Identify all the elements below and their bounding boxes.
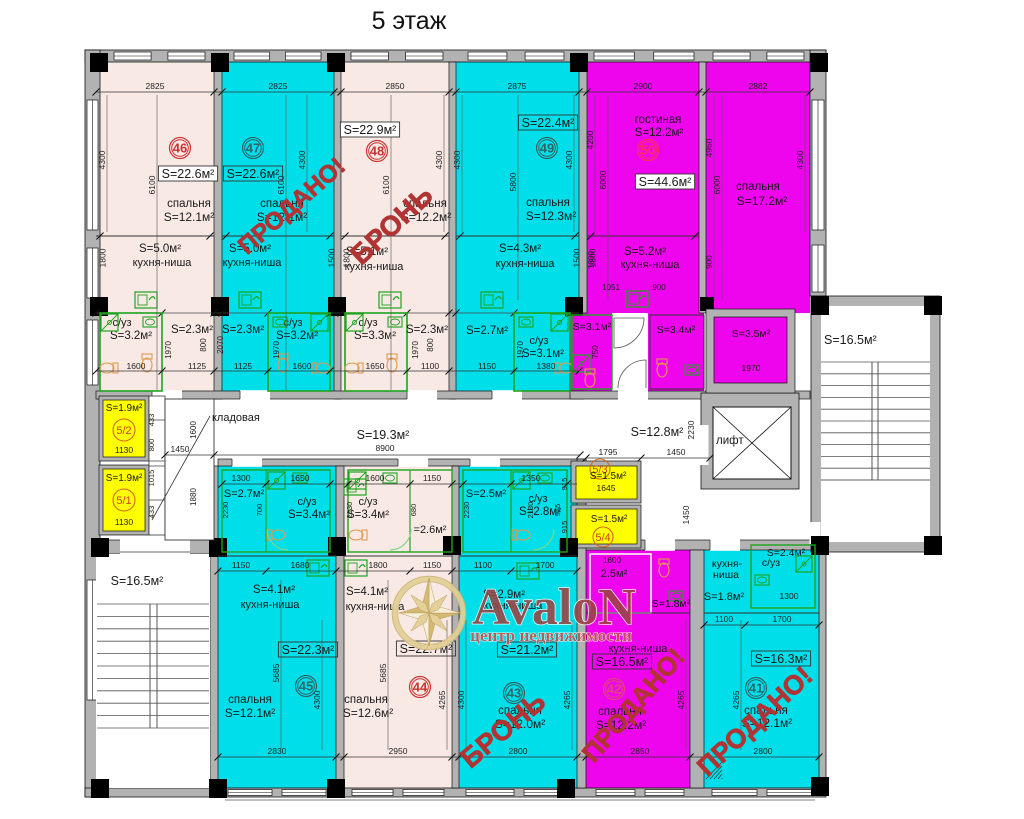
- svg-text:5/2: 5/2: [116, 425, 131, 437]
- svg-text:S=5.2м²: S=5.2м²: [624, 246, 666, 258]
- svg-text:S=22.3м²: S=22.3м²: [282, 643, 335, 657]
- svg-text:1500: 1500: [572, 248, 582, 267]
- svg-text:1700: 1700: [773, 614, 792, 624]
- svg-text:S=1.5м²: S=1.5м²: [590, 471, 627, 482]
- svg-text:4300: 4300: [434, 150, 444, 169]
- svg-text:S=2.3м²: S=2.3м²: [222, 324, 264, 336]
- svg-text:915: 915: [560, 478, 569, 491]
- svg-text:4950: 4950: [704, 138, 714, 157]
- svg-text:1970: 1970: [742, 363, 761, 373]
- svg-text:кухня-ниша: кухня-ниша: [496, 258, 556, 270]
- svg-text:900: 900: [652, 283, 666, 292]
- svg-text:433: 433: [147, 414, 156, 427]
- svg-text:S=1.9м²: S=1.9м²: [106, 473, 143, 484]
- svg-text:6100: 6100: [147, 175, 157, 194]
- svg-text:900: 900: [705, 255, 714, 269]
- svg-text:1300: 1300: [780, 591, 799, 601]
- svg-text:4265: 4265: [562, 690, 572, 709]
- svg-text:2850: 2850: [631, 746, 650, 756]
- svg-text:1600: 1600: [293, 361, 312, 371]
- svg-text:4300: 4300: [795, 150, 805, 169]
- svg-text:S=16.5м²: S=16.5м²: [111, 574, 164, 588]
- svg-text:1450: 1450: [681, 505, 691, 524]
- svg-text:S=4.3м²: S=4.3м²: [499, 243, 541, 255]
- svg-text:S=3.4м²: S=3.4м²: [288, 509, 330, 521]
- svg-text:2875: 2875: [508, 81, 527, 91]
- svg-text:S=3.5м²: S=3.5м²: [732, 328, 771, 340]
- svg-text:1130: 1130: [115, 517, 134, 527]
- svg-text:41: 41: [749, 681, 763, 696]
- svg-text:1150: 1150: [232, 560, 251, 570]
- svg-text:5/4: 5/4: [595, 532, 610, 544]
- svg-text:спальня: спальня: [167, 198, 211, 210]
- svg-text:46: 46: [173, 141, 187, 156]
- svg-text:433: 433: [147, 506, 156, 519]
- svg-text:S=2.3м²: S=2.3м²: [171, 324, 213, 336]
- svg-text:2130: 2130: [345, 502, 354, 519]
- svg-text:2825: 2825: [146, 81, 165, 91]
- svg-text:центр недвижимости: центр недвижимости: [470, 626, 632, 645]
- svg-text:с/уз: с/уз: [112, 317, 131, 329]
- svg-text:S=2.7м²: S=2.7м²: [466, 325, 508, 337]
- svg-text:1350: 1350: [522, 473, 541, 483]
- svg-text:4300: 4300: [97, 150, 107, 169]
- svg-text:700: 700: [255, 504, 264, 517]
- svg-text:915: 915: [553, 504, 562, 517]
- svg-text:4300: 4300: [456, 690, 466, 709]
- svg-text:5685: 5685: [378, 663, 388, 682]
- svg-text:кухня-ниша: кухня-ниша: [241, 599, 301, 611]
- svg-text:S=3.1м²: S=3.1м²: [522, 348, 564, 360]
- svg-text:4200: 4200: [585, 130, 595, 149]
- svg-text:800: 800: [426, 338, 435, 352]
- svg-text:4300: 4300: [297, 150, 307, 169]
- svg-text:1300: 1300: [232, 473, 251, 483]
- svg-text:S=3.2м²: S=3.2м²: [110, 330, 152, 342]
- svg-text:кухня-ниша: кухня-ниша: [133, 257, 193, 269]
- svg-text:800: 800: [199, 338, 208, 352]
- svg-text:1800: 1800: [98, 248, 108, 267]
- svg-text:S=22.9м²: S=22.9м²: [344, 123, 397, 137]
- svg-text:2130: 2130: [526, 502, 535, 519]
- svg-text:2230: 2230: [221, 502, 230, 519]
- svg-text:с/уз: с/уз: [529, 335, 548, 347]
- svg-text:1380: 1380: [537, 361, 556, 371]
- svg-text:S=21.2м²: S=21.2м²: [501, 643, 554, 657]
- svg-text:6100: 6100: [381, 175, 391, 194]
- svg-text:1100: 1100: [474, 560, 493, 570]
- svg-text:гостиная: гостиная: [635, 114, 682, 126]
- svg-text:1150: 1150: [423, 473, 442, 483]
- svg-text:42: 42: [607, 682, 621, 697]
- svg-text:1130: 1130: [115, 445, 134, 455]
- svg-text:4265: 4265: [676, 690, 686, 709]
- svg-text:лифт: лифт: [716, 435, 744, 447]
- svg-text:2800: 2800: [754, 746, 773, 756]
- svg-text:8900: 8900: [376, 443, 395, 453]
- svg-text:50: 50: [641, 143, 655, 158]
- svg-text:1970: 1970: [164, 341, 173, 359]
- svg-text:4300: 4300: [564, 150, 574, 169]
- svg-text:1650: 1650: [366, 361, 385, 371]
- svg-text:кухня-ниша: кухня-ниша: [345, 261, 405, 273]
- svg-text:S=12.8м²: S=12.8м²: [631, 425, 684, 439]
- svg-text:1100: 1100: [421, 361, 440, 371]
- svg-text:1600: 1600: [603, 556, 621, 565]
- svg-text:1450: 1450: [667, 447, 686, 457]
- svg-text:S=3.4м²: S=3.4м²: [657, 324, 696, 336]
- svg-text:с/уз: с/уз: [762, 557, 780, 569]
- svg-text:1680: 1680: [291, 560, 310, 570]
- svg-text:кладовая: кладовая: [212, 412, 260, 424]
- svg-text:1970: 1970: [272, 341, 281, 359]
- svg-text:2825: 2825: [269, 81, 288, 91]
- svg-text:1800: 1800: [369, 560, 388, 570]
- svg-text:1645: 1645: [597, 483, 616, 493]
- svg-text:спальня: спальня: [228, 694, 272, 706]
- svg-text:1880: 1880: [189, 488, 198, 506]
- svg-text:S=12.1м²: S=12.1м²: [225, 706, 276, 720]
- svg-text:1650: 1650: [291, 473, 310, 483]
- svg-text:S=22.4м²: S=22.4м²: [522, 116, 575, 130]
- svg-text:45: 45: [299, 679, 313, 694]
- svg-text:2882: 2882: [749, 81, 768, 91]
- svg-text:S=12.1м²: S=12.1м²: [164, 210, 215, 224]
- svg-text:1450: 1450: [171, 444, 190, 454]
- svg-text:2850: 2850: [386, 81, 405, 91]
- svg-text:5/1: 5/1: [116, 495, 131, 507]
- svg-text:1600: 1600: [366, 473, 385, 483]
- svg-text:4265: 4265: [437, 690, 447, 709]
- svg-text:S=3.3м²: S=3.3м²: [354, 330, 396, 342]
- svg-text:915: 915: [560, 521, 569, 534]
- svg-text:S=22.6м²: S=22.6м²: [227, 167, 280, 181]
- svg-text:S=44.6м²: S=44.6м²: [639, 175, 692, 189]
- svg-text:кухня-ниша: кухня-ниша: [223, 257, 283, 269]
- svg-text:1600: 1600: [189, 421, 198, 439]
- svg-text:с/уз: с/уз: [297, 496, 316, 508]
- svg-text:44: 44: [413, 680, 428, 695]
- svg-text:1125: 1125: [188, 361, 207, 371]
- svg-text:S=19.3м²: S=19.3м²: [357, 428, 410, 442]
- svg-text:S=4.1м²: S=4.1м²: [346, 586, 388, 598]
- svg-text:1150: 1150: [423, 560, 442, 570]
- svg-text:2800: 2800: [509, 746, 528, 756]
- svg-text:1600: 1600: [127, 361, 146, 371]
- svg-text:1051: 1051: [602, 283, 620, 292]
- svg-text:4300: 4300: [452, 150, 462, 169]
- svg-text:S=1.9м²: S=1.9м²: [106, 403, 143, 414]
- svg-text:2230: 2230: [462, 502, 471, 519]
- svg-text:S=3.2м²: S=3.2м²: [276, 330, 318, 342]
- svg-text:ниша: ниша: [713, 569, 739, 581]
- svg-text:5 этаж: 5 этаж: [372, 7, 447, 35]
- svg-text:47: 47: [246, 141, 260, 156]
- svg-text:S=17.2м²: S=17.2м²: [737, 194, 788, 208]
- svg-text:S=12.3м²: S=12.3м²: [526, 209, 577, 223]
- svg-text:800: 800: [147, 439, 156, 452]
- svg-text:S=2.3м²: S=2.3м²: [406, 324, 448, 336]
- svg-text:48: 48: [370, 144, 384, 159]
- svg-text:S=1.8м²: S=1.8м²: [704, 591, 745, 603]
- svg-text:2070: 2070: [216, 336, 225, 354]
- svg-text:S=3.1м²: S=3.1м²: [573, 321, 612, 333]
- svg-text:1970: 1970: [516, 341, 525, 359]
- svg-text:S=4.1м²: S=4.1м²: [253, 584, 295, 596]
- svg-text:с/уз: с/уз: [358, 317, 377, 329]
- svg-text:спальня: спальня: [736, 181, 780, 193]
- svg-text:1970: 1970: [411, 341, 420, 359]
- svg-text:5800: 5800: [508, 172, 518, 191]
- svg-text:S=16.5м²: S=16.5м²: [824, 333, 877, 347]
- svg-text:спальня: спальня: [526, 197, 570, 209]
- svg-text:S=1.8м²: S=1.8м²: [652, 598, 691, 610]
- svg-text:1125: 1125: [234, 361, 253, 371]
- svg-text:с/уз: с/уз: [358, 496, 377, 508]
- svg-text:5685: 5685: [271, 663, 281, 682]
- svg-text:1795: 1795: [599, 447, 618, 457]
- svg-text:спальня: спальня: [344, 694, 388, 706]
- svg-text:1500: 1500: [327, 248, 337, 267]
- svg-text:1700: 1700: [536, 560, 555, 570]
- svg-text:S=2.5м²: S=2.5м²: [466, 488, 507, 500]
- svg-text:S=2.7м²: S=2.7м²: [224, 488, 265, 500]
- svg-text:2950: 2950: [389, 746, 408, 756]
- svg-text:2230: 2230: [686, 420, 696, 439]
- svg-text:680: 680: [409, 504, 418, 517]
- svg-text:49: 49: [540, 141, 554, 156]
- svg-text:2900: 2900: [634, 81, 653, 91]
- svg-text:1100: 1100: [715, 614, 734, 624]
- svg-text:S=12.6м²: S=12.6м²: [343, 706, 394, 720]
- svg-text:S=5.0м²: S=5.0м²: [139, 243, 181, 255]
- svg-text:2830: 2830: [268, 746, 287, 756]
- svg-text:1800: 1800: [587, 251, 596, 269]
- svg-text:6000: 6000: [598, 170, 608, 189]
- svg-text:1015: 1015: [147, 470, 156, 487]
- svg-text:4265: 4265: [731, 690, 741, 709]
- svg-text:=2.6м²: =2.6м²: [414, 524, 447, 536]
- svg-text:S=12.2м²: S=12.2м²: [635, 127, 684, 139]
- svg-text:1150: 1150: [478, 361, 497, 371]
- svg-text:S=22.6м²: S=22.6м²: [162, 167, 215, 181]
- svg-text:кухня-ниша: кухня-ниша: [621, 259, 681, 271]
- svg-text:S=16.5м²: S=16.5м²: [596, 655, 649, 669]
- svg-text:6000: 6000: [712, 175, 722, 194]
- svg-text:S=1.5м²: S=1.5м²: [591, 514, 628, 525]
- svg-text:750: 750: [591, 345, 600, 359]
